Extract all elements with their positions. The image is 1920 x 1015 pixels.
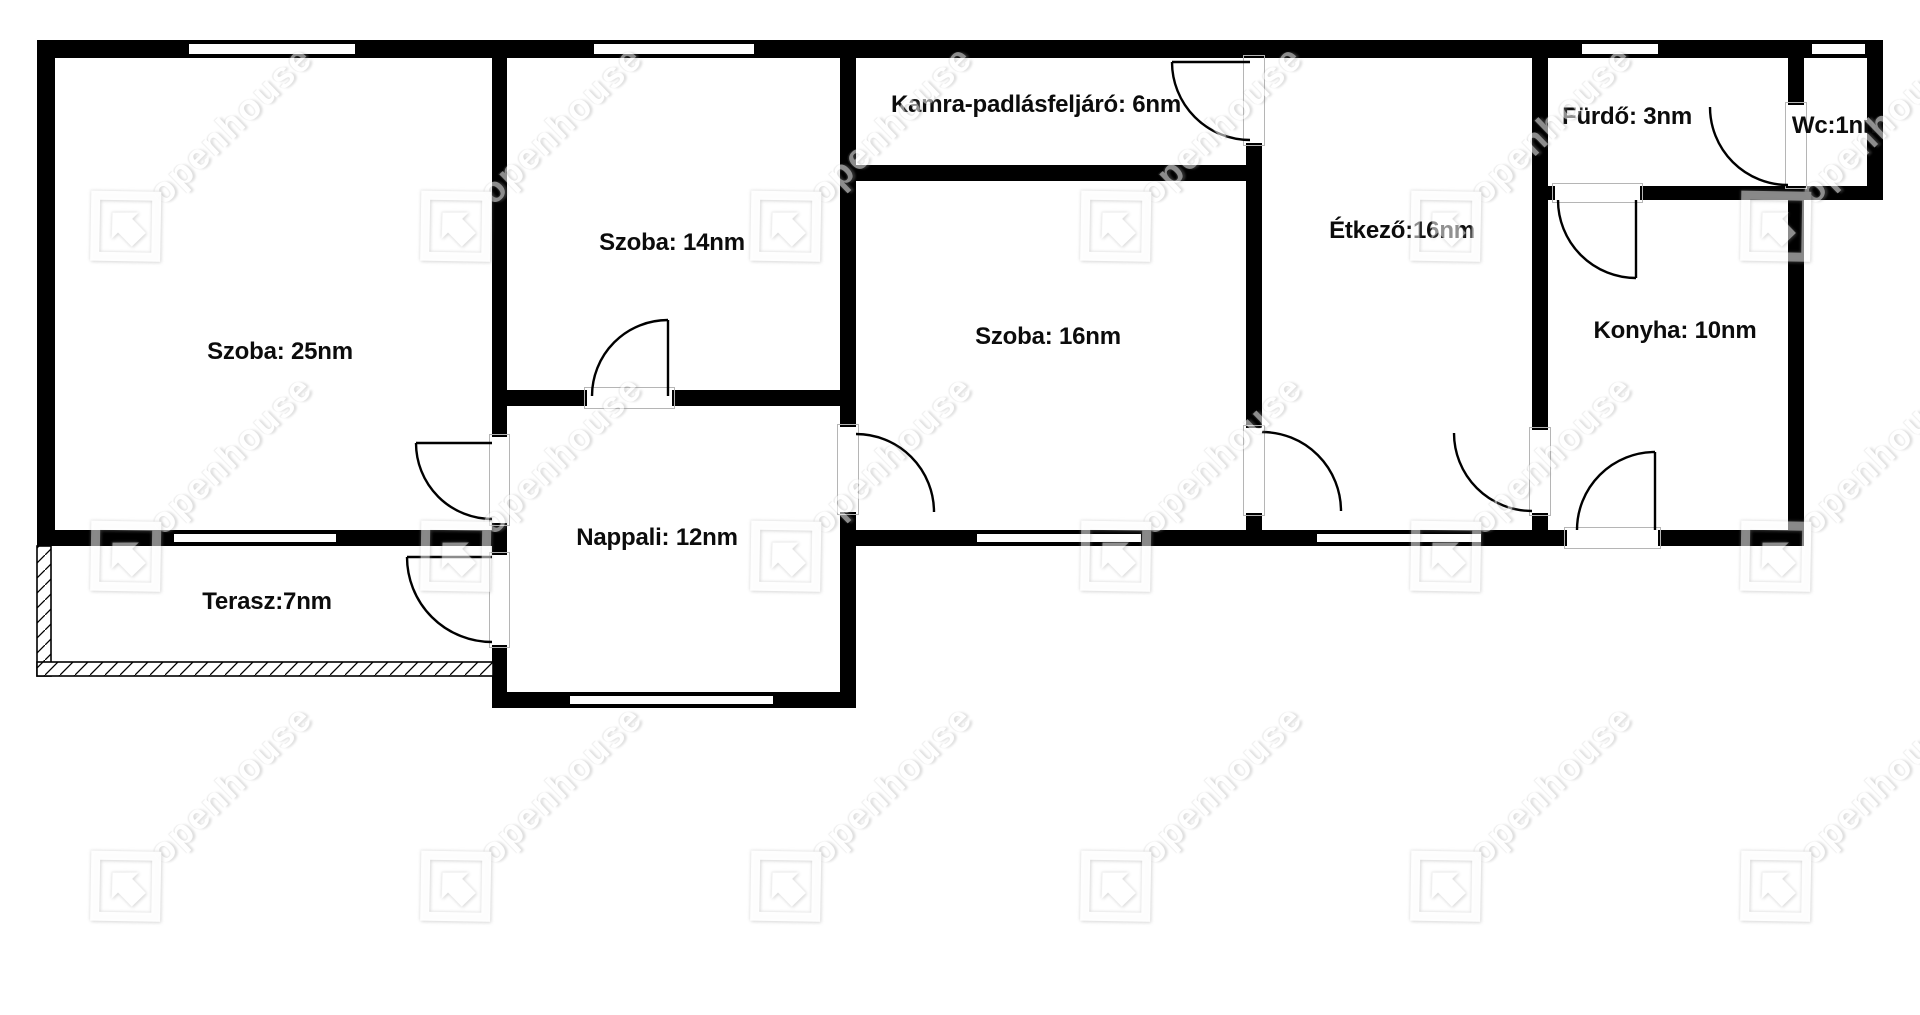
openhouse-watermark: openhouse: [1063, 846, 1143, 926]
door-frame: [584, 387, 675, 409]
openhouse-logo-icon: [750, 191, 821, 262]
door-swing-arc: [1172, 62, 1250, 140]
openhouse-watermark: openhouse: [1393, 516, 1473, 596]
openhouse-logo-icon: [1080, 851, 1151, 922]
openhouse-logo-icon: [90, 851, 161, 922]
window: [172, 532, 338, 544]
room-label-kamra: Kamra-padlásfeljáró: 6nm: [891, 91, 1181, 119]
openhouse-watermark: openhouse: [733, 186, 813, 266]
openhouse-logo-icon: [420, 191, 491, 262]
door-swing-arc: [856, 434, 934, 512]
wall: [840, 58, 856, 708]
door-frame: [1243, 55, 1265, 146]
watermark-text: openhouse: [141, 37, 321, 213]
door-frame: [837, 424, 859, 515]
window: [1810, 42, 1867, 56]
watermark-text: openhouse: [1131, 697, 1311, 873]
openhouse-logo-icon: [90, 191, 161, 262]
door-frame: [1552, 183, 1643, 203]
floor-plan: Szoba: 25nmSzoba: 14nmKamra-padlásfeljár…: [0, 0, 1920, 1015]
openhouse-watermark: openhouse: [403, 846, 483, 926]
window: [1580, 42, 1660, 56]
watermark-text: openhouse: [1791, 367, 1920, 543]
door-swing-arc: [1262, 432, 1341, 511]
watermark-text: openhouse: [471, 697, 651, 873]
wall: [856, 165, 1246, 181]
room-label-szoba25: Szoba: 25nm: [207, 338, 353, 366]
door-frame: [489, 552, 510, 648]
hatched-wall: [37, 546, 51, 676]
door-swing-arc: [1558, 200, 1636, 278]
watermark-text: openhouse: [1461, 697, 1641, 873]
wall: [37, 40, 55, 546]
door-frame: [1564, 527, 1661, 549]
watermark-text: openhouse: [1131, 367, 1311, 543]
window: [975, 532, 1143, 544]
watermark-text: openhouse: [801, 37, 981, 213]
door-frame: [1529, 427, 1551, 516]
openhouse-watermark: openhouse: [1723, 846, 1803, 926]
room-label-wc: Wc:1nm: [1792, 112, 1884, 140]
room-label-szoba16: Szoba: 16nm: [975, 323, 1121, 351]
openhouse-watermark: openhouse: [403, 516, 483, 596]
openhouse-watermark: openhouse: [73, 516, 153, 596]
openhouse-logo-icon: [1410, 851, 1481, 922]
door-swing-arc: [407, 557, 492, 642]
openhouse-watermark: openhouse: [1063, 516, 1143, 596]
openhouse-watermark: openhouse: [73, 186, 153, 266]
hatched-wall: [37, 662, 493, 676]
door-frame: [1243, 425, 1265, 516]
openhouse-logo-icon: [750, 521, 821, 592]
openhouse-watermark: openhouse: [403, 186, 483, 266]
door-frame: [489, 434, 510, 526]
openhouse-watermark: openhouse: [73, 846, 153, 926]
openhouse-logo-icon: [750, 851, 821, 922]
openhouse-logo-icon: [1080, 191, 1151, 262]
watermark-text: openhouse: [1791, 697, 1920, 873]
window: [1315, 532, 1483, 544]
watermark-text: openhouse: [801, 697, 981, 873]
window: [187, 42, 357, 56]
door-swing-arc: [416, 443, 492, 519]
watermark-text: openhouse: [1131, 37, 1311, 213]
door-swing-arc: [592, 320, 668, 396]
doors-and-hatch-layer: [0, 0, 1920, 1015]
openhouse-watermark: openhouse: [1393, 846, 1473, 926]
door-swing-arc: [1710, 107, 1788, 185]
watermark-text: openhouse: [141, 367, 321, 543]
watermark-text: openhouse: [141, 697, 321, 873]
openhouse-logo-icon: [420, 851, 491, 922]
room-label-nappali: Nappali: 12nm: [576, 524, 737, 552]
openhouse-watermark: openhouse: [1063, 186, 1143, 266]
door-swing-arc: [1454, 433, 1532, 511]
openhouse-watermark: openhouse: [733, 516, 813, 596]
room-label-furdo: Fürdő: 3nm: [1562, 103, 1692, 131]
openhouse-watermark: openhouse: [733, 846, 813, 926]
openhouse-logo-icon: [1740, 851, 1811, 922]
room-label-terasz: Terasz:7nm: [202, 588, 332, 616]
window: [592, 42, 756, 56]
door-swing-arc: [1577, 452, 1655, 530]
room-label-szoba14: Szoba: 14nm: [599, 229, 745, 257]
room-label-konyha: Konyha: 10nm: [1594, 317, 1757, 345]
door-swings: [407, 62, 1788, 642]
room-label-etkezo: Étkező:16nm: [1329, 217, 1475, 245]
window: [568, 694, 775, 706]
